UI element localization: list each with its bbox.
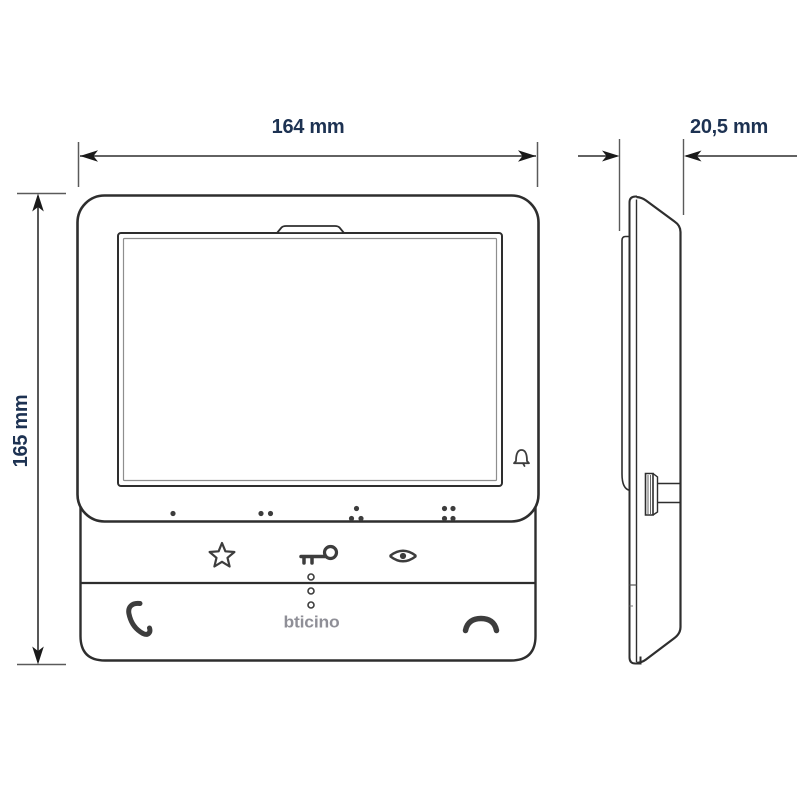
side-connector-block [646, 474, 681, 516]
dot-group-3 [358, 516, 363, 521]
screen-outer [118, 233, 502, 486]
brand-logo: bticino [264, 613, 359, 633]
dot-group-2 [268, 511, 273, 516]
dimension-width [79, 142, 538, 187]
side-back-outline [637, 197, 681, 663]
dot-group-4 [442, 516, 447, 521]
dot-group-3 [349, 516, 354, 521]
dimension-depth [578, 139, 797, 231]
dot-group-2 [258, 511, 263, 516]
camera-notch [277, 226, 344, 233]
width-dimension-label: 164 mm [233, 116, 383, 139]
side-front-plate [630, 197, 641, 664]
dot-group-1 [170, 511, 175, 516]
side-view [622, 197, 681, 664]
dot-group-4 [450, 506, 455, 511]
dot-group-4 [442, 506, 447, 511]
dot-group-4 [450, 516, 455, 521]
front-view [78, 196, 539, 661]
dot-group-3 [354, 506, 359, 511]
indicator-circles [308, 574, 314, 608]
height-dimension-label: 165 mm [9, 356, 33, 506]
technical-drawing-page: 164 mm 20,5 mm 165 mm bticino [0, 0, 800, 800]
depth-dimension-label: 20,5 mm [664, 116, 794, 139]
